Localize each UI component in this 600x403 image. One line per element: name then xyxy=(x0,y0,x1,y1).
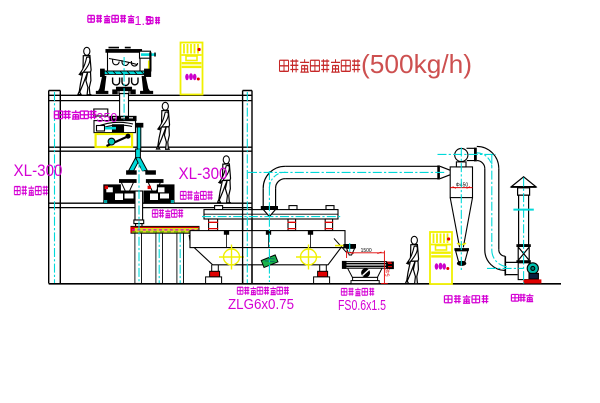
svg-text:548: 548 xyxy=(386,268,392,277)
svg-text:350: 350 xyxy=(97,111,118,125)
svg-text:(500kg/h): (500kg/h) xyxy=(361,49,472,79)
svg-text:Φ450: Φ450 xyxy=(456,182,469,188)
svg-text:XL-300: XL-300 xyxy=(179,164,228,183)
svg-text:1500: 1500 xyxy=(361,248,372,254)
svg-text:XL-300: XL-300 xyxy=(14,161,63,180)
svg-text:FS0.6x1.5: FS0.6x1.5 xyxy=(338,298,386,314)
svg-text:ZLG6x0.75: ZLG6x0.75 xyxy=(228,297,294,313)
